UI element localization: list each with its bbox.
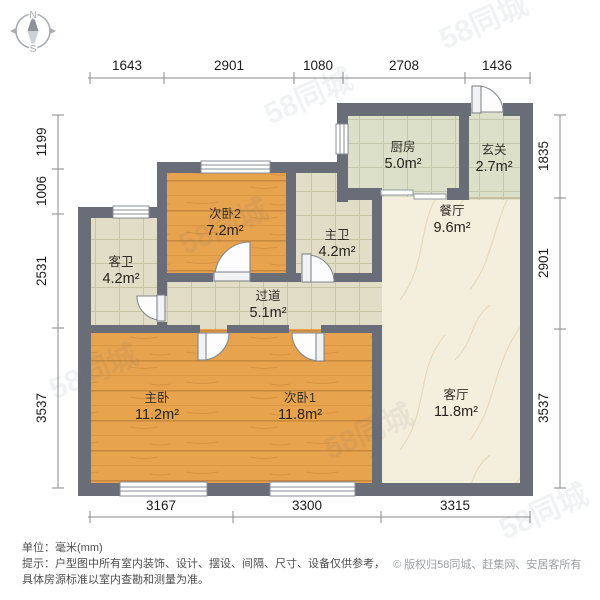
wall-segment [91, 325, 200, 333]
wall-segment [334, 273, 382, 282]
compass: N S [10, 10, 56, 55]
watermark-text: 58同城 [434, 0, 533, 56]
compass-south-label: S [30, 44, 37, 55]
window-master-bedroom [120, 482, 207, 496]
dim-left-2: 1006 [34, 176, 49, 206]
label-kitchen-area: 5.0m² [384, 156, 421, 172]
label-bedroom1-area: 11.8m² [278, 407, 322, 423]
dim-top-4: 2708 [389, 58, 419, 73]
door-entry [472, 86, 503, 113]
label-hallway-name: 过道 [255, 289, 281, 303]
dim-left-4: 3537 [34, 393, 49, 423]
wall-segment [157, 273, 213, 282]
wall-segment [337, 103, 471, 116]
wall-segment [459, 103, 469, 200]
label-master-bedroom-name: 主卧 [144, 391, 169, 405]
dim-left-1: 1199 [34, 127, 49, 156]
wall-segment [286, 162, 296, 282]
dim-top-1: 1643 [112, 58, 142, 73]
label-guest-bath-area: 4.2m² [102, 271, 139, 287]
label-hallway-area: 5.1m² [249, 305, 286, 321]
wall-segment [227, 325, 289, 333]
wall-segment [250, 273, 301, 282]
footer-copyright: © 版权归58同城、赶集网、安居客所有 [393, 557, 581, 571]
wall-segment [78, 207, 91, 496]
dimension-line-right [554, 115, 566, 488]
label-dining-name: 餐厅 [439, 203, 464, 218]
compass-east-arrow [49, 28, 56, 35]
footer-tip: 提示：户型图中所有室内装饰、设计、摆设、间隔、尺寸、设备仅供参考， [22, 556, 385, 570]
footer-unit: 单位：毫米(mm) [22, 540, 103, 554]
label-master-bedroom-area: 11.2m² [135, 407, 179, 423]
label-master-bath-name: 主卫 [324, 228, 349, 242]
dim-top-2: 2901 [214, 58, 244, 73]
window-guest-bath [113, 206, 149, 218]
window-kitchen [336, 124, 348, 154]
floorplan-canvas: 厨房 5.0m² 玄关 2.7m² 次卧2 7.2m² 客卫 4.2m² 主卫 … [0, 0, 600, 600]
compass-north-label: N [29, 10, 36, 21]
label-entry-area: 2.7m² [475, 159, 512, 175]
window-bedroom2 [201, 161, 270, 173]
dim-top-5: 1436 [482, 58, 512, 73]
dim-right-3: 3537 [536, 393, 551, 423]
dimension-line-left [52, 115, 64, 488]
dim-bottom-3: 3315 [440, 498, 470, 513]
label-living-area: 11.8m² [434, 404, 478, 420]
wall-segment [520, 103, 533, 496]
label-living-name: 客厅 [443, 387, 468, 402]
label-master-bath-area: 4.2m² [318, 244, 355, 260]
room-living-dining-floor [377, 196, 525, 488]
wall-segment [447, 188, 469, 200]
window-bedroom1 [270, 482, 355, 496]
dim-bottom-1: 3167 [146, 498, 176, 513]
room-hallway-floor [162, 277, 382, 329]
label-dining-area: 9.6m² [433, 220, 470, 236]
compass-west-arrow [10, 28, 17, 35]
dim-bottom-2: 3300 [292, 498, 322, 513]
label-entry-name: 玄关 [481, 142, 506, 157]
footer: 单位：毫米(mm) 提示：户型图中所有室内装饰、设计、摆设、间隔、尺寸、设备仅供… [22, 540, 581, 586]
wall-segment [157, 217, 167, 296]
dim-right-2: 2901 [536, 248, 551, 278]
dim-left-3: 2531 [34, 256, 49, 286]
dim-right-1: 1835 [536, 141, 551, 171]
wall-segment [372, 325, 382, 483]
wall-segment [372, 188, 382, 282]
label-guest-bath-name: 客卫 [108, 254, 133, 269]
label-kitchen-name: 厨房 [390, 139, 415, 154]
footer-tip2: 具体房源标准以室内查勘和测量为准。 [22, 572, 209, 586]
label-bedroom1-name: 次卧1 [284, 391, 316, 405]
